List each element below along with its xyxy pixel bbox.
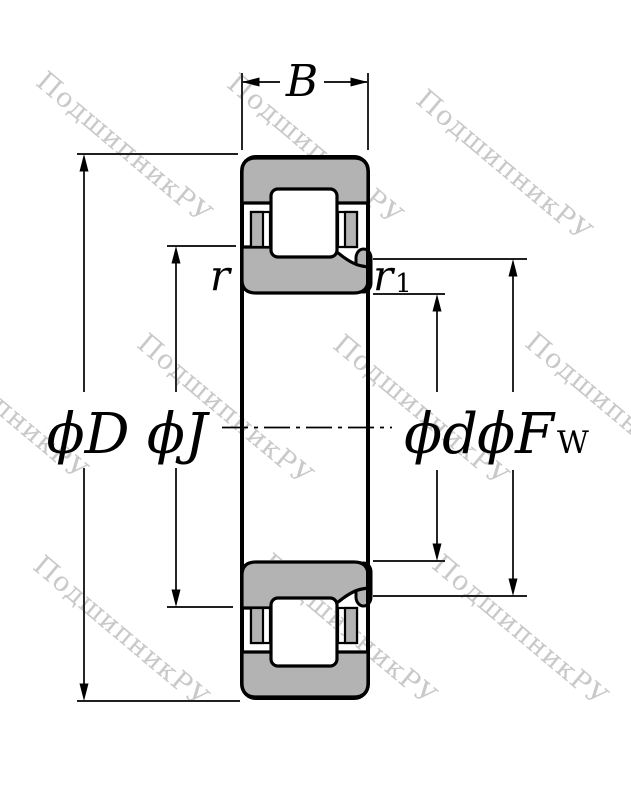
dim-label-phid: ϕd: [404, 402, 478, 467]
dim-label-phiFw: ϕFW: [477, 402, 589, 467]
arrowhead-down: [433, 544, 442, 562]
arrowhead-down: [172, 590, 181, 608]
arrowhead-up: [433, 294, 442, 312]
arrowhead-down: [509, 579, 518, 597]
dim-label-phiJ: ϕJ: [147, 402, 211, 467]
cage-bar-right-top: [345, 212, 357, 247]
dim-label-phiD: ϕD: [46, 402, 129, 467]
dim-label-phiF: ϕF: [477, 402, 556, 467]
arrowhead-right: [351, 78, 369, 87]
bearing-diagram: B ϕD ϕJ ϕd ϕFW: [0, 0, 631, 792]
roller-bottom: [271, 598, 337, 666]
roller-top: [271, 189, 337, 257]
arrowhead-down: [80, 684, 89, 702]
arrowhead-up: [172, 246, 181, 264]
label-r1-subscript: 1: [395, 269, 412, 299]
cage-bar-left-bottom: [251, 608, 263, 643]
cage-bar-left-top: [251, 212, 263, 247]
bearing-bottom-section: [242, 562, 371, 697]
arrowhead-up: [80, 154, 89, 172]
dimension-pitch-diameter: ϕJ: [147, 246, 236, 607]
arrowhead-up: [509, 259, 518, 277]
dim-label-Fw-subscript: W: [557, 425, 589, 461]
label-chamfer-r: r: [210, 251, 233, 300]
label-r1-main: r: [373, 251, 396, 300]
arrowhead-left: [242, 78, 260, 87]
dimension-width-B: B: [242, 56, 368, 150]
bearing-top-section: [242, 158, 371, 293]
cage-bar-right-bottom: [345, 608, 357, 643]
dimension-outer-diameter: ϕD: [46, 154, 240, 701]
dim-label-B: B: [285, 56, 318, 107]
bearing-drawing-canvas: B ϕD ϕJ ϕd ϕFW: [0, 0, 631, 792]
dimension-bore-diameter: ϕd: [373, 294, 478, 561]
